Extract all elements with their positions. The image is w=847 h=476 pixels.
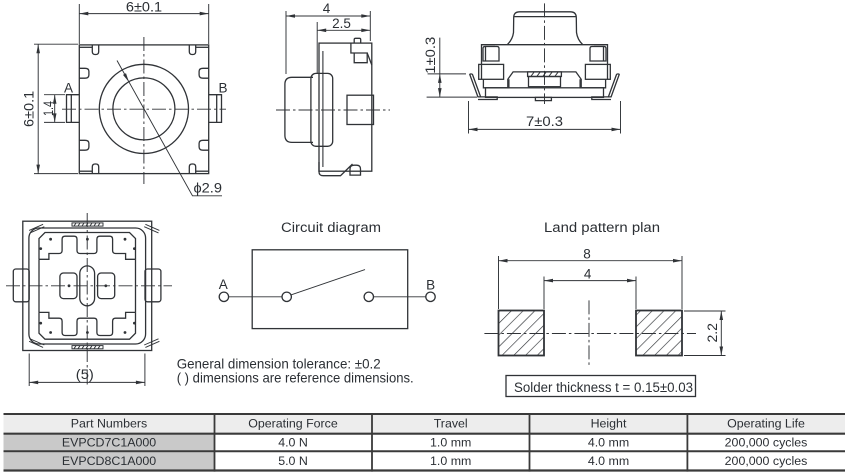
svg-text:1±0.3: 1±0.3 [423, 37, 438, 74]
svg-text:1.0 mm: 1.0 mm [430, 436, 471, 450]
svg-text:A: A [219, 277, 228, 292]
svg-text:4: 4 [584, 266, 592, 281]
svg-text:B: B [218, 80, 227, 95]
svg-text:(5): (5) [76, 367, 94, 382]
svg-text:2.5: 2.5 [332, 16, 351, 31]
svg-text:Part Numbers: Part Numbers [71, 417, 147, 431]
svg-text:A: A [64, 80, 73, 95]
svg-text:4.0 mm: 4.0 mm [588, 454, 629, 468]
svg-text:7±0.3: 7±0.3 [526, 114, 563, 129]
svg-text:Circuit diagram: Circuit diagram [281, 220, 381, 235]
svg-text:4.0 mm: 4.0 mm [588, 436, 629, 450]
svg-text:EVPCD7C1A000: EVPCD7C1A000 [62, 436, 156, 450]
svg-text:Travel: Travel [434, 417, 468, 431]
svg-text:Land pattern plan: Land pattern plan [544, 220, 660, 235]
svg-text:Solder thickness t = 0.15±0.03: Solder thickness t = 0.15±0.03 [514, 380, 693, 395]
svg-text:ϕ2.9: ϕ2.9 [194, 181, 223, 196]
svg-text:( ) dimensions are reference d: ( ) dimensions are reference dimensions. [177, 369, 414, 385]
svg-text:5.0 N: 5.0 N [278, 454, 308, 468]
svg-text:200,000 cycles: 200,000 cycles [725, 436, 808, 450]
svg-text:Height: Height [591, 417, 627, 431]
svg-text:4: 4 [323, 1, 331, 16]
svg-text:Operating Life: Operating Life [727, 417, 805, 431]
svg-text:200,000 cycles: 200,000 cycles [725, 454, 808, 468]
svg-text:4.0 N: 4.0 N [278, 436, 308, 450]
svg-text:EVPCD8C1A000: EVPCD8C1A000 [62, 454, 156, 468]
svg-text:1.0 mm: 1.0 mm [430, 454, 471, 468]
svg-text:8: 8 [583, 247, 591, 262]
svg-text:6±0.1: 6±0.1 [126, 0, 162, 15]
svg-text:1.4: 1.4 [41, 101, 56, 116]
svg-text:6±0.1: 6±0.1 [22, 91, 37, 127]
svg-text:B: B [426, 277, 435, 292]
svg-text:Operating Force: Operating Force [248, 417, 338, 431]
svg-text:2.2: 2.2 [705, 323, 720, 343]
